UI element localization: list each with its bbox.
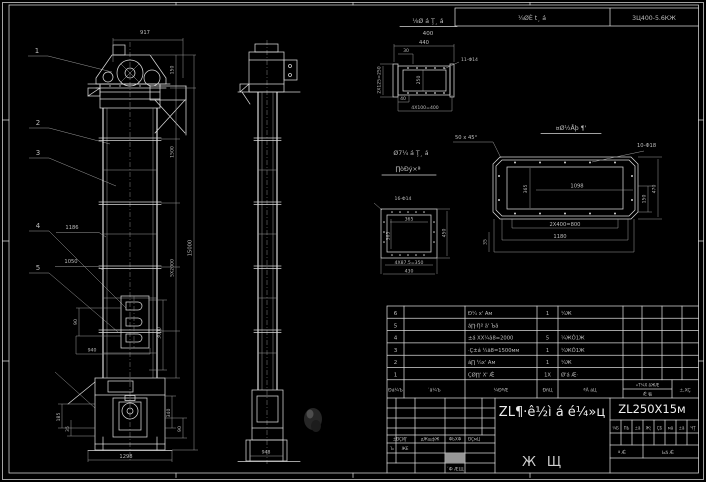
tb-cell: ¼Б xyxy=(612,426,619,431)
bom-header-no: Ðá¼Ъ xyxy=(388,387,403,394)
bom-name: ±á XX¼ã8=2000 xyxy=(468,335,513,342)
dim-150-right: 150 xyxy=(642,195,648,204)
dim-365b: 365 xyxy=(386,232,392,241)
bom-no: 2 xyxy=(394,360,398,366)
tb-left-r2: ЖЕ xyxy=(402,446,409,451)
bom-qty: 1 xyxy=(546,360,549,366)
dim-15000: 15000 xyxy=(188,240,194,257)
bom-header-name: ¼ÐªÆ xyxy=(494,388,509,394)
bom-qty: 1 xyxy=(546,311,549,317)
title-glyph-2: Щ xyxy=(547,455,561,470)
title-glyph-1: Ж xyxy=(522,455,536,470)
dim-1298: 1298 xyxy=(119,454,132,460)
tb-left-h2: дЖщфЖ xyxy=(421,437,440,442)
tb-approve-1: ª Ǽ xyxy=(618,448,627,456)
balloon-4: 4 xyxy=(36,222,41,230)
bom-no: 1 xyxy=(394,373,398,379)
front-view: 90 940 1186 1050 185 35 340 90 1298 917 … xyxy=(55,30,198,462)
tb-approve-2: Ьã Ǽ xyxy=(662,448,674,456)
tb-left-h1: ±ÐÇИЈ' xyxy=(393,437,408,442)
dim-450: 450 xyxy=(442,229,448,238)
bucket-elevator-drawing: ¼ØÈ t¸ á 3Ц400-5.6КЖ ⅛Ø á Ţ¸ á 400 440 3… xyxy=(0,0,706,482)
dim-30: 30 xyxy=(403,48,409,54)
detail-right-flange: ¤Ø½Åþ ¶' 50 x 45° 10-Φ18 1098 365 150 47… xyxy=(453,123,662,252)
bom-name: ÇØ∏' X' Ǽ xyxy=(468,371,494,379)
dim-4x100: 4Х100=400 xyxy=(411,105,439,111)
bom-table: 6 Ð¼ х' Ам 1 ¼Ж 5 á∏·Ŋª ã' Ъã 4 ±á XX¼ã8… xyxy=(387,306,699,473)
top-header: ¼ØÈ t¸ á 3Ц400-5.6КЖ ⅛Ø á Ţ¸ á 400 xyxy=(400,8,699,37)
dim-948: 948 xyxy=(262,450,271,456)
detail-title: ⅛Ø á Ţ¸ á xyxy=(412,17,443,25)
detail-mid-flange: Ø7¼ á Ţ¸ á ∏òÐý×ª 16-Φ14 365 365 450 4Х8… xyxy=(374,149,450,275)
bom-mat: ¼ЖÔ1Ж xyxy=(561,347,585,354)
dim-1098: 1098 xyxy=(570,184,583,190)
bom-no: 5 xyxy=(394,323,398,329)
bom-mat: ¼Ж xyxy=(561,311,572,317)
tb-left-r1: ´Ь xyxy=(389,446,394,451)
bom-no: 6 xyxy=(394,311,398,317)
bom-header-weight-sub: Ǽ 㸸 xyxy=(643,391,652,397)
label-holes-10: 10-Φ18 xyxy=(637,143,656,149)
tb-left-h4: ÐÇмЦ xyxy=(468,437,480,442)
dim-90-right: 90 xyxy=(177,426,183,432)
dim-40: 40 xyxy=(400,96,406,102)
bom-header-code: ´ã¼Ъ xyxy=(427,388,441,394)
tb-left-h3: ФЬХФ xyxy=(449,437,462,442)
header-mid-label: ¼ØÈ t¸ á xyxy=(518,13,546,22)
dim-940: 940 xyxy=(88,348,97,354)
bom-name: á∏·Ŋª ã' Ъã xyxy=(468,322,498,329)
bom-qty: 1 xyxy=(546,348,549,354)
chamfer-note: 50 x 45° xyxy=(455,135,478,141)
dim-4x87: 4Х87.5=350 xyxy=(395,260,424,266)
mid-title-2: ∏òÐý×ª xyxy=(395,165,420,173)
dim-250: 250 xyxy=(416,76,422,85)
label-holes-16: 16-Φ14 xyxy=(395,196,412,202)
cad-drawing-canvas[interactable]: ¼ØÈ t¸ á 3Ц400-5.6КЖ ⅛Ø á Ţ¸ á 400 440 3… xyxy=(0,0,706,482)
dim-365a: 365 xyxy=(405,217,414,223)
dim-365-right: 365 xyxy=(523,185,529,194)
bom-header-remark: ±,XÇ xyxy=(679,388,690,394)
label-holes-11: 11-Φ14 xyxy=(461,57,478,63)
tb-cell: ЧŢ xyxy=(690,426,696,431)
bom-mat: ¼ЖÔ1Ж xyxy=(561,335,585,342)
mid-title-1: Ø7¼ á Ţ¸ á xyxy=(393,149,428,157)
detail-title-sub: 400 xyxy=(423,31,434,37)
tb-cell: ПЬ xyxy=(624,426,630,431)
tb-cell: мã xyxy=(668,426,674,431)
main-title: ZL¶·ê½ì á é¼»ц xyxy=(499,405,606,420)
bom-header-mat: ªÃ áЦ xyxy=(583,387,597,394)
bom-no: 3 xyxy=(394,348,398,354)
balloon-3: 3 xyxy=(36,149,40,157)
dim-35-left: 35 xyxy=(65,426,71,432)
drawing-number: ZL250X15м xyxy=(618,402,685,416)
highlighted-cell xyxy=(446,454,465,464)
dim-window-90: 90 xyxy=(73,319,79,325)
tb-cell: ±ã xyxy=(635,426,641,431)
balloon-5: 5 xyxy=(36,264,40,272)
side-view: 948 xyxy=(238,40,300,464)
bom-header-qty: ÐñЦ xyxy=(542,388,552,394)
dim-185: 185 xyxy=(56,413,62,422)
bom-qty: 5 xyxy=(546,336,549,342)
bom-name: Ð¼ х' Ам xyxy=(468,311,492,317)
dim-35-right: 35 xyxy=(483,239,489,245)
balloon-2: 2 xyxy=(36,119,40,127)
bom-qty: 1X xyxy=(544,373,551,379)
balloon-1: 1 xyxy=(35,47,39,55)
bom-name: á∏ ¼х' Ам xyxy=(468,359,495,366)
dim-1050: 1050 xyxy=(64,259,77,265)
bom-no: 4 xyxy=(394,336,398,342)
bom-header-weight: «Т¼Х ãЖÆ xyxy=(636,383,660,388)
bom-mat: Ø'á Æ· xyxy=(561,372,578,379)
dim-470: 470 xyxy=(652,185,658,194)
detail-top-flange: 440 30 2Х125=250 250 40 4Х100=400 11-Φ14 xyxy=(377,40,479,111)
dim-150: 150 xyxy=(170,66,176,75)
bom-mat: ¼Ж xyxy=(561,360,572,366)
dim-430: 430 xyxy=(405,269,414,275)
dim-1186: 1186 xyxy=(65,225,78,231)
dim-2x125: 2Х125=250 xyxy=(377,66,383,94)
dim-1500: 1500 xyxy=(170,146,176,158)
title-block: ±ÐÇИЈ' дЖщфЖ ФЬХФ ÐÇмЦ ´Ь ЖЕ ´Ф ÆЩ ZL¶·ê… xyxy=(387,398,699,473)
dim-1180: 1180 xyxy=(553,234,566,240)
dim-2x400: 2Х400=800 xyxy=(549,222,580,228)
header-right-label: 3Ц400-5.6КЖ xyxy=(632,15,676,22)
tb-cell: ±ã xyxy=(679,426,685,431)
tb-cell: ÇБ xyxy=(657,426,663,431)
dim-917: 917 xyxy=(140,30,150,36)
dim-3000: 3000 xyxy=(157,327,163,339)
tb-cell: Ж¦ xyxy=(646,426,652,431)
right-title: ¤Ø½Åþ ¶' xyxy=(556,123,587,132)
tb-left-bottom: ´Ф ÆЩ xyxy=(446,467,463,473)
smudge-blob xyxy=(304,408,322,432)
bom-name: ·Ç±á ¼ã8=1500мм xyxy=(468,347,519,354)
dim-5x2000: 5Х2000 xyxy=(170,259,176,277)
dim-340: 340 xyxy=(166,409,172,418)
dim-440: 440 xyxy=(419,40,429,46)
